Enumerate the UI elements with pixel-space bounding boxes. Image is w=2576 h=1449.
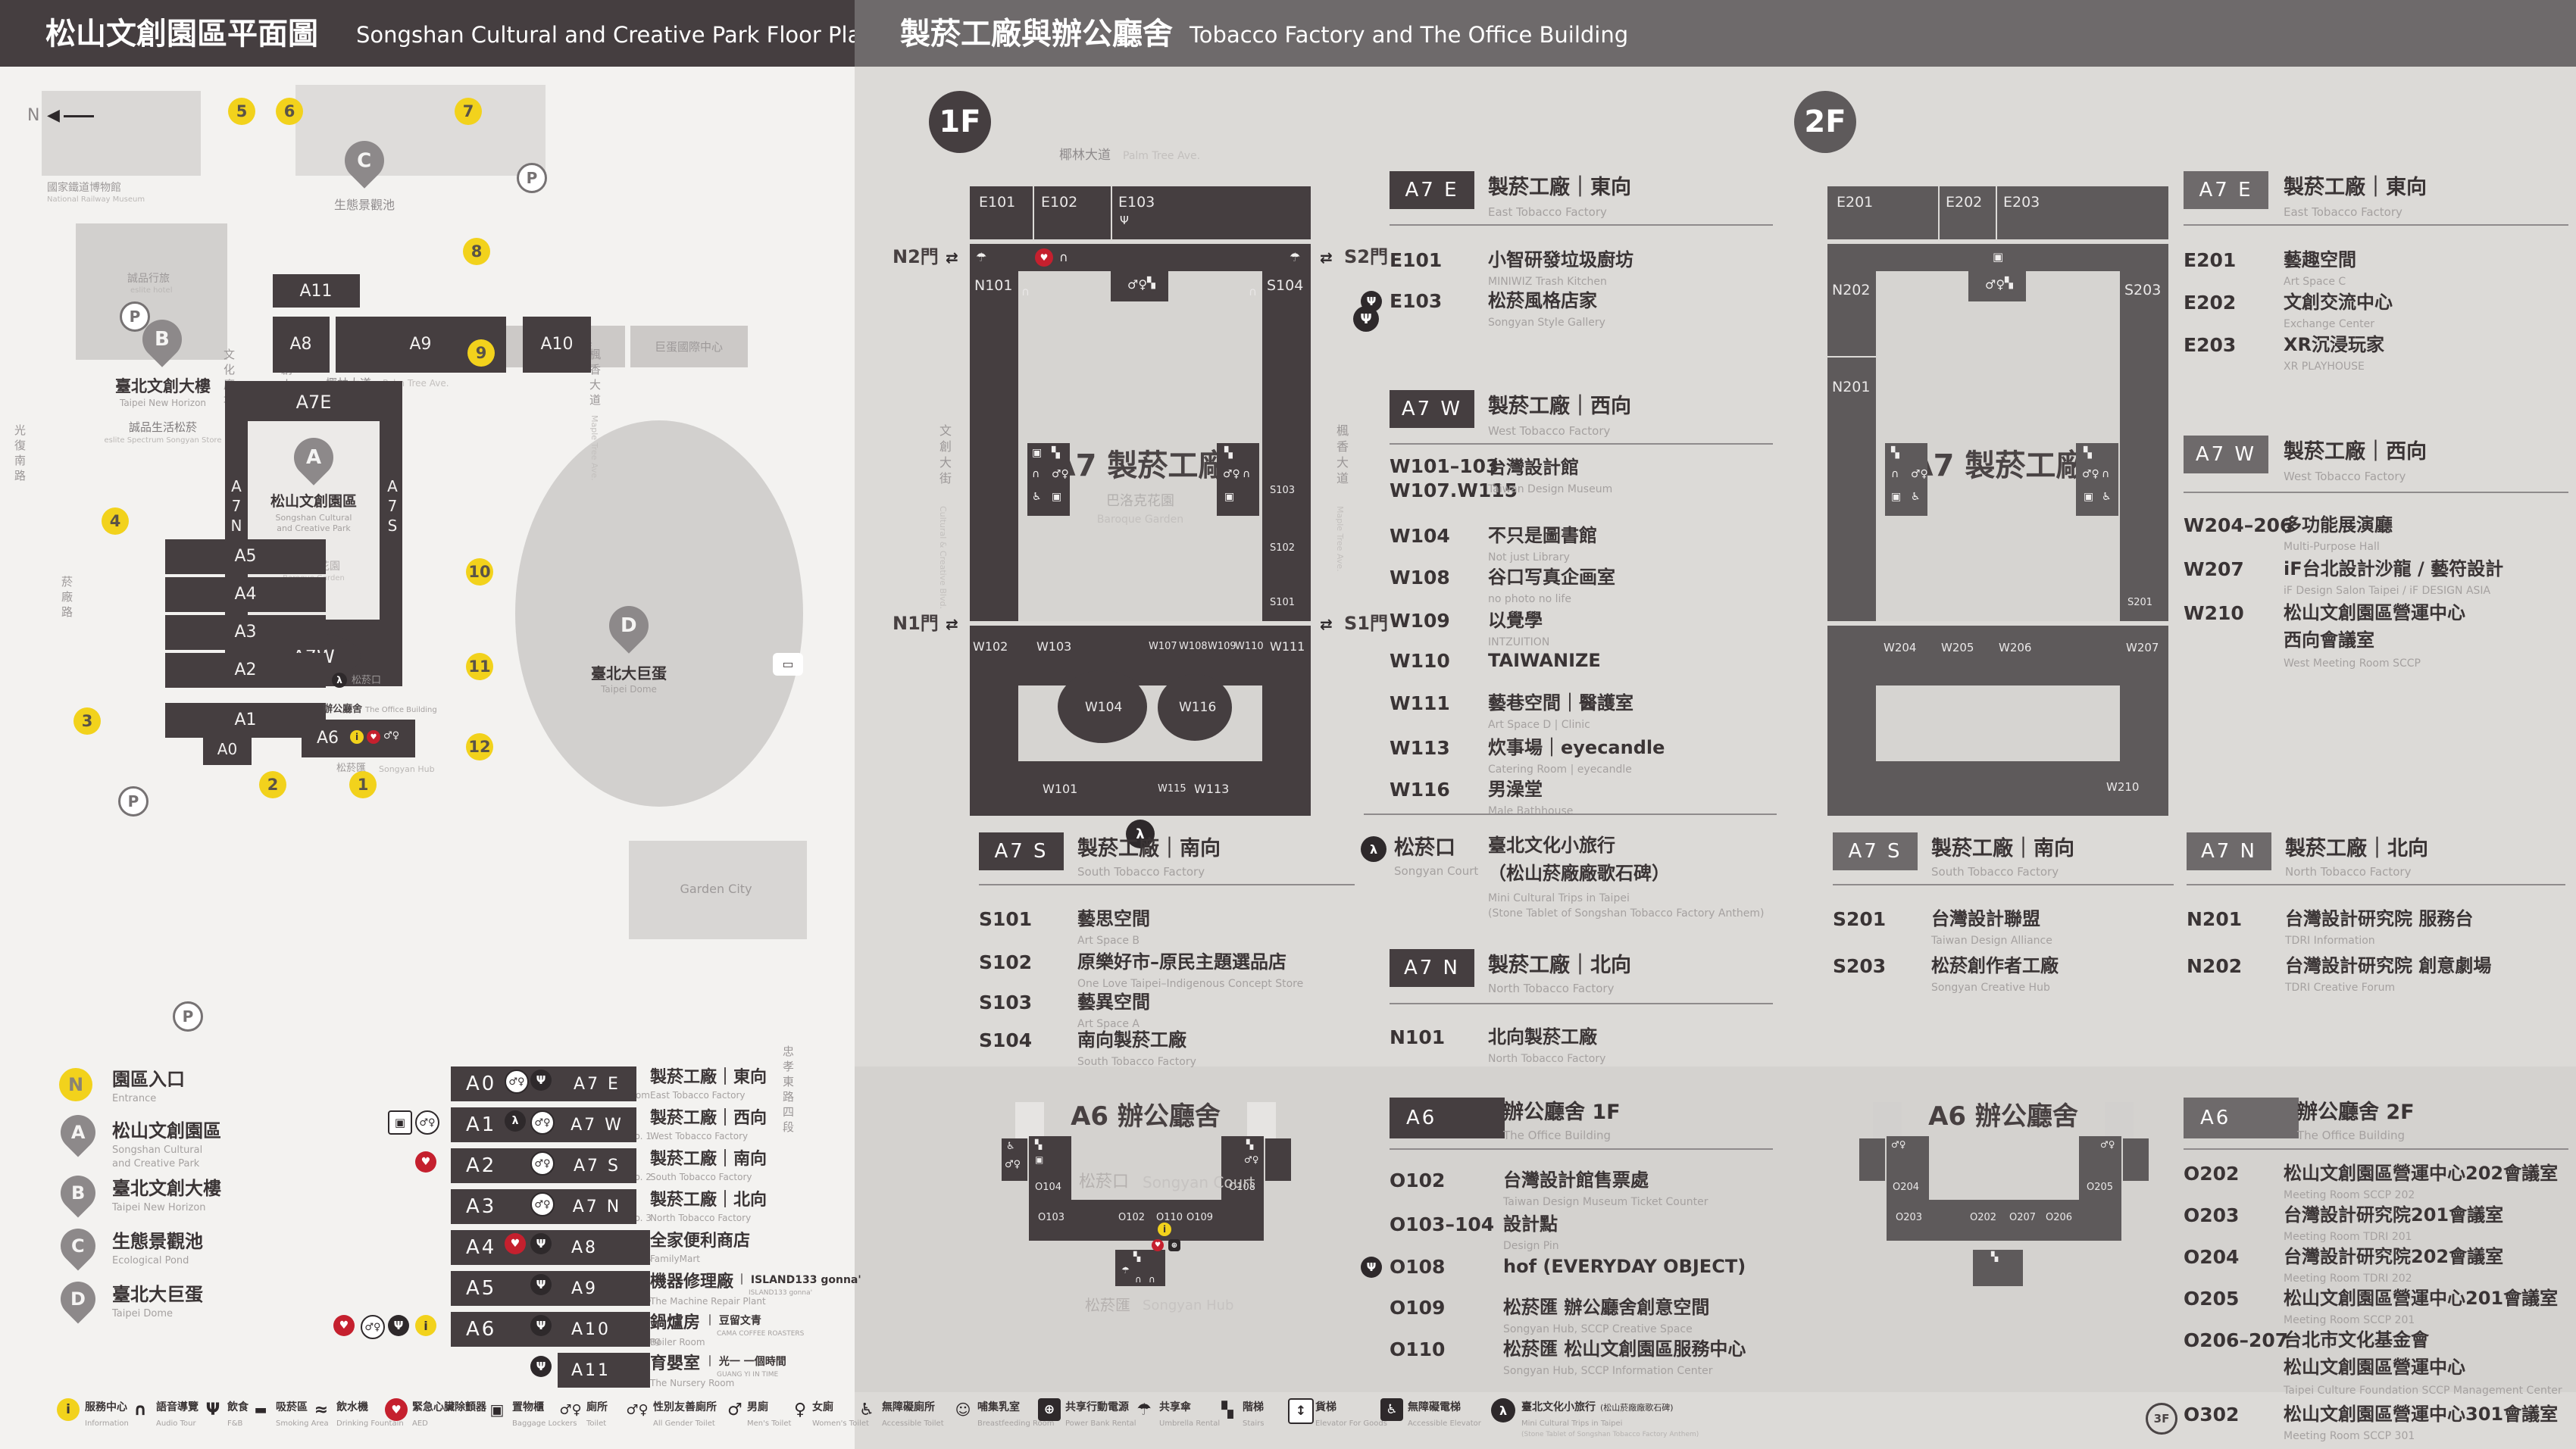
- toilet-icon: ♂♀: [1223, 468, 1240, 480]
- songyan-hub-label-en: Songyan Hub: [379, 765, 435, 775]
- songyan-court-label: 松菸口: [352, 676, 381, 687]
- facility-umbrella-zh: 共享傘: [1159, 1401, 1191, 1413]
- gate-s1-arrows: ⇄: [1320, 615, 1333, 633]
- audio-icon: ∩: [1135, 1274, 1142, 1285]
- dir-1f-a7n-zh: 製菸工廠｜北向: [1488, 954, 1631, 977]
- stairs-icon: ▚: [1224, 447, 1233, 459]
- fnb-icon: Ψ: [1361, 1257, 1382, 1278]
- womens-toilet-icon: ♀: [792, 1398, 808, 1421]
- row-e103-code: E103: [1390, 291, 1442, 313]
- row-o206-zh: 台北市文化基金會: [2284, 1330, 2429, 1351]
- row-s103-code: S103: [979, 992, 1032, 1014]
- row-o109-zh: 松菸匯 辦公廳舍創意空間: [1503, 1298, 1709, 1319]
- accessible-icon: ♿: [1911, 491, 1921, 503]
- locker-icon: ▣: [388, 1110, 412, 1135]
- gate-n2-arrows: ⇄: [946, 248, 958, 267]
- room-w102: W102: [973, 639, 1008, 654]
- dir-2f-a7s-en: South Tobacco Factory: [1931, 866, 2059, 879]
- row-o110-zh: 松菸匯 松山文創園區服務中心: [1503, 1339, 1746, 1360]
- facility-breastfeeding-zh: 哺集乳室: [977, 1401, 1020, 1413]
- gate-s2-arrows: ⇄: [1320, 248, 1333, 267]
- dir-2f-a7w-rule: [2184, 492, 2568, 493]
- row-w116-zh: 男澡堂: [1488, 779, 1543, 801]
- f2-ediv1: [1938, 186, 1940, 239]
- row-n101-code: N101: [1390, 1027, 1445, 1049]
- fnb-icon: Ψ: [203, 1398, 223, 1421]
- facility-audio-zh: 語音導覽: [156, 1401, 199, 1413]
- facility-trip-en2: (Stone Tablet of Songshan Tobacco Factor…: [1521, 1431, 1699, 1438]
- row-s103-en: Art Space A: [1077, 1018, 1140, 1030]
- power-bank-icon: ⊕: [1038, 1398, 1061, 1421]
- f1-garden-zh: 巴洛克花園: [1106, 494, 1174, 510]
- toilet-icon: ♂♀: [1891, 1139, 1906, 1150]
- room-e102: E102: [1041, 194, 1077, 211]
- dir-1f-a7n-en: North Tobacco Factory: [1488, 982, 1614, 995]
- locker-icon: ▣: [1993, 250, 2003, 264]
- garden-city-label: Garden City: [680, 882, 752, 896]
- eslite-spectrum-label-zh: 誠品生活松菸: [129, 421, 197, 434]
- fnb-icon: Ψ: [530, 1070, 552, 1091]
- stairs-icon: ▚: [1891, 447, 1899, 459]
- information-icon: i: [57, 1398, 80, 1421]
- room-n101: N101: [974, 277, 1012, 294]
- row-w109-zh: 以覺學: [1488, 611, 1543, 632]
- baggage-locker-icon: ▣: [486, 1398, 508, 1421]
- building-a7n-label: A7N: [227, 477, 245, 536]
- bus-stop-icon: ▭: [773, 653, 803, 676]
- entrance-11: 11: [466, 653, 493, 680]
- room-e202: E202: [1946, 194, 1982, 211]
- accessible-icon: ♿: [1006, 1141, 1015, 1152]
- row-n202-zh: 台灣設計研究院 創意劇場: [2285, 956, 2491, 977]
- legend-a10-brand: ｜ 豆留文青: [705, 1315, 761, 1327]
- room-w206: W206: [1999, 641, 2031, 654]
- locker-icon: ▣: [1032, 447, 1042, 459]
- row-s101-code: S101: [979, 909, 1032, 931]
- row-w108-code: W108: [1390, 567, 1450, 589]
- legend-a-en2: and Creative Park: [112, 1159, 199, 1170]
- row-w204-en: Multi-Purpose Hall: [2284, 541, 2380, 553]
- row-e101-zh: 小智研發垃圾廚坊: [1488, 250, 1633, 271]
- street-palm-1f-zh: 椰林大道: [1059, 148, 1111, 164]
- f2-lower-courtyard: [1876, 685, 2120, 761]
- building-a9-label: A9: [409, 335, 431, 354]
- row-w101-zh: 台灣設計館: [1488, 457, 1579, 479]
- entrance-8: 8: [463, 238, 490, 265]
- row-w113-en: Catering Room | eyecandle: [1488, 764, 1632, 776]
- locker-icon: ▣: [2084, 491, 2093, 503]
- dir-2f-a7e-zh: 製菸工廠｜東向: [2284, 176, 2427, 199]
- office-building-label-zh: 辦公廳舍: [323, 704, 362, 716]
- dir-a6-1f-badge: A6: [1390, 1098, 1505, 1138]
- goods-elevator-icon: ↕: [1288, 1398, 1314, 1424]
- row-s203-zh: 松菸創作者工廠: [1931, 956, 2059, 977]
- row-e201-code: E201: [2184, 250, 2236, 272]
- a6-2f-map-title: A6 辦公廳舍: [1928, 1102, 2078, 1132]
- info-icon: i: [415, 1315, 436, 1336]
- dir-2f-a7s-zh: 製菸工廠｜南向: [1931, 837, 2074, 860]
- accessible-elevator-icon: ♿: [1380, 1398, 1403, 1421]
- room-o102: O102: [1118, 1212, 1145, 1223]
- audio-icon: ∩: [1032, 468, 1039, 480]
- room-w107: W107: [1149, 641, 1177, 652]
- eslite-spectrum-label-en: eslite Spectrum Songyan Store: [105, 436, 222, 445]
- floor-plan-poster: 松山文創園區平面圖 Songshan Cultural and Creative…: [0, 0, 2576, 1449]
- row-s103-zh: 藝異空間: [1077, 992, 1150, 1013]
- dir-a6-1f-rule: [1390, 1148, 1773, 1150]
- row-e103-zh: 松菸風格店家: [1488, 291, 1597, 312]
- a6-1f-court-zh: 松菸口: [1079, 1173, 1129, 1191]
- room-w205: W205: [1941, 641, 1974, 654]
- aed-icon: ♥: [505, 1233, 526, 1254]
- row-w207-en: iF Design Salon Taipei / iF DESIGN ASIA: [2284, 585, 2490, 597]
- entrance-12: 12: [466, 733, 493, 760]
- legend-a7w-en: West Tobacco Factory: [650, 1132, 748, 1142]
- row-w113-zh: 炊事場｜eyecandle: [1488, 738, 1665, 759]
- legend-a7s-en: South Tobacco Factory: [650, 1173, 752, 1183]
- row-o109-en: Songyan Hub, SCCP Creative Space: [1503, 1323, 1693, 1335]
- court-zh: 松菸口: [1394, 836, 1455, 860]
- row-o206-code: O206–207: [2184, 1330, 2288, 1352]
- legend-a11-en: The Nursery Room: [650, 1379, 734, 1389]
- fnb-icon: Ψ: [388, 1315, 409, 1336]
- facility-power-en: Power Bank Rental: [1065, 1419, 1136, 1429]
- row-n201-zh: 台灣設計研究院 服務台: [2285, 909, 2473, 930]
- legend-a6-badge: A6: [451, 1312, 572, 1347]
- audio-tour-icon: ∩: [129, 1398, 152, 1421]
- row-o206-en: Taipei Culture Foundation SCCP Managemen…: [2284, 1385, 2562, 1397]
- stairs-icon: ▚: [1147, 277, 1155, 289]
- dir-1f-a7s-rule: [979, 884, 1355, 885]
- row-w101-en: Taiwan Design Museum: [1488, 483, 1612, 495]
- row-w116-en: Male Bathhouse: [1488, 805, 1573, 817]
- row-o110-en: Songyan Hub, SCCP Information Center: [1503, 1365, 1713, 1377]
- cultural-trip-icon: λ: [1491, 1398, 1515, 1422]
- gate-n1-arrows: ⇄: [946, 615, 958, 633]
- aed-icon: ♥: [1152, 1239, 1164, 1251]
- building-a7s-label: A7S: [383, 477, 402, 536]
- facility-men-en: Men's Toilet: [747, 1419, 791, 1429]
- legend-a11-zh: 育嬰室: [650, 1354, 700, 1373]
- audio-icon: ∩: [1891, 468, 1899, 480]
- legend-entrance-en: Entrance: [112, 1094, 156, 1105]
- row-w110-code: W110: [1390, 651, 1450, 673]
- aed-icon: ♥: [385, 1398, 408, 1421]
- parking-icon: P: [517, 163, 547, 193]
- row-n101-zh: 北向製菸工廠: [1488, 1027, 1597, 1048]
- legend-a8-en: FamilyMart: [650, 1254, 700, 1265]
- row-s104-en: South Tobacco Factory: [1077, 1056, 1196, 1068]
- toilet-icon: ♂♀: [361, 1315, 385, 1339]
- row-e203-en: XR PLAYHOUSE: [2284, 361, 2365, 373]
- legend-a9-zh: 機器修理廠: [650, 1273, 733, 1291]
- row-o302-code: O302: [2184, 1404, 2239, 1426]
- toilet-icon: ♂♀: [1052, 468, 1069, 480]
- row-w104-en: Not just Library: [1488, 551, 1570, 564]
- toilet-icon: ♂♀: [1127, 277, 1147, 292]
- building-a8-label: A8: [289, 335, 311, 354]
- building-a2-label: A2: [234, 660, 256, 679]
- aed-icon: ♥: [415, 1151, 436, 1173]
- entrance-10: 10: [466, 558, 493, 586]
- legend-c-en: Ecological Pond: [112, 1256, 189, 1267]
- row-w101-code: W101–103: [1390, 456, 1499, 478]
- walk-icon: λ: [332, 673, 347, 688]
- toilet-icon: ♂♀: [1911, 468, 1928, 480]
- room-w204: W204: [1884, 641, 1916, 654]
- facility-accessible-zh: 無障礙廁所: [882, 1401, 935, 1413]
- audio-icon: ∩: [1243, 468, 1250, 480]
- facility-trip-zh: 臺北文化小旅行: [1521, 1401, 1596, 1413]
- legend-a7n-en: North Tobacco Factory: [650, 1213, 751, 1224]
- room-w110: W110: [1235, 641, 1264, 652]
- facility-trip-zh2: (松山菸廠廠歌石碑): [1600, 1404, 1674, 1413]
- facility-toilet-zh: 廁所: [586, 1401, 608, 1413]
- facility-men-zh: 男廁: [747, 1401, 768, 1413]
- room-s101: S101: [1270, 597, 1295, 608]
- compass-line: [64, 115, 94, 117]
- pond-block: [295, 85, 546, 176]
- header-left-title-en: Songshan Cultural and Creative Park Floo…: [356, 23, 875, 48]
- audio-icon: ∩: [1059, 250, 1068, 264]
- room-s103: S103: [1270, 485, 1295, 496]
- all-gender-toilet-icon: ♂♀: [626, 1398, 649, 1421]
- room-o202: O202: [1970, 1212, 1996, 1223]
- f1-ediv1: [1033, 186, 1034, 239]
- legend-a10-brand2: CAMA COFFEE ROASTERS: [717, 1330, 804, 1338]
- row-o110-code: O110: [1390, 1339, 1445, 1361]
- aed-icon: ♥: [1035, 248, 1053, 267]
- row-o102-zh: 台灣設計館售票處: [1503, 1170, 1649, 1191]
- row-w111-code: W111: [1390, 693, 1450, 715]
- f2-top-band: [1827, 186, 2168, 239]
- court-en: Songyan Court: [1394, 865, 1478, 878]
- mens-toilet-icon: ♂: [727, 1398, 742, 1421]
- legend-a8-badge: A8: [558, 1230, 650, 1265]
- f1-right-band: [1262, 244, 1311, 816]
- court-item-en2: (Stone Tablet of Songshan Tobacco Factor…: [1488, 907, 1764, 920]
- locker-icon: ▣: [1052, 491, 1061, 503]
- row-e101-code: E101: [1390, 250, 1442, 272]
- fnb-icon: Ψ: [530, 1315, 552, 1336]
- office-building-label-en: The Office Building: [365, 706, 437, 715]
- eslite-hotel-label-en: eslite hotel: [130, 286, 172, 295]
- dir-a6-1f-en: The Office Building: [1503, 1129, 1611, 1142]
- legend-a9-badge: A9: [558, 1271, 650, 1306]
- legend-a11-badge: A11: [558, 1353, 650, 1388]
- legend-c-zh: 生態景觀池: [112, 1232, 203, 1253]
- row-o108-code: O108: [1390, 1257, 1445, 1279]
- legend-a7w-badge: A7 W: [558, 1107, 636, 1142]
- power-bank-icon: ⊕: [1168, 1239, 1180, 1251]
- legend-a8-zh: 全家便利商店: [650, 1232, 750, 1251]
- legend-a10-badge: A10: [558, 1312, 650, 1347]
- row-w207-code: W207: [2184, 559, 2244, 581]
- facility-acc-lift-zh: 無障礙電梯: [1408, 1401, 1461, 1413]
- room-w109: W109: [1208, 641, 1236, 652]
- sccp-label-en1: Songshan Cultural: [276, 514, 352, 523]
- legend-a7e-en: East Tobacco Factory: [650, 1091, 746, 1101]
- a6-1f-pillar: [1247, 1102, 1276, 1138]
- f1-street-right-en: Maple Tree Ave.: [1335, 506, 1345, 572]
- dir-a6-2f-en: The Office Building: [2297, 1129, 2405, 1142]
- dir-2f-a7e-badge: A7 E: [2184, 171, 2268, 209]
- legend-a-en1: Songshan Cultural: [112, 1145, 202, 1157]
- room-w104: W104: [1085, 700, 1122, 715]
- eslite-hotel-label-zh: 誠品行旅: [127, 273, 170, 285]
- dir-2f-a7n-zh: 製菸工廠｜北向: [2285, 837, 2428, 860]
- sccp-label-zh: 松山文創園區: [270, 494, 357, 511]
- dir-1f-a7e-en: East Tobacco Factory: [1488, 206, 1607, 219]
- legend-a9-brand: ｜ ISLAND133 gonna': [736, 1274, 861, 1286]
- room-e101: E101: [979, 194, 1015, 211]
- fnb-icon: Ψ: [530, 1356, 552, 1377]
- row-o205-code: O205: [2184, 1288, 2239, 1310]
- street-yanchang-zh: 菸廠路: [59, 576, 75, 621]
- row-s102-code: S102: [979, 952, 1032, 974]
- room-w108: W108: [1179, 641, 1208, 652]
- room-o207: O207: [2009, 1212, 2036, 1223]
- entrance-1: 1: [349, 771, 377, 798]
- a6-1f-hub-zh: 松菸匯: [1085, 1297, 1130, 1314]
- room-e103: E103: [1118, 194, 1155, 211]
- legend-a7w-zh: 製菸工廠｜西向: [650, 1109, 767, 1128]
- building-a7e-label: A7E: [296, 392, 332, 414]
- entrance-7: 7: [455, 98, 482, 125]
- legend-b-zh: 臺北文創大樓: [112, 1179, 221, 1200]
- dir-2f-a7w-en: West Tobacco Factory: [2284, 470, 2406, 483]
- entrance-3: 3: [73, 707, 101, 735]
- row-o103-code: O103–104: [1390, 1214, 1494, 1236]
- row-w207-zh: iF台北設計沙龍 / 藝符設計: [2284, 559, 2503, 580]
- aed-icon: ♥: [333, 1315, 355, 1336]
- dir-a6-2f-zh: 辦公廳舍 2F: [2297, 1101, 2415, 1124]
- room-o109: O109: [1186, 1212, 1213, 1223]
- f2-ediv2: [1996, 186, 1997, 239]
- toilet-icon: ♂♀: [530, 1192, 555, 1216]
- f2-right-band: [2120, 244, 2168, 816]
- toilet-icon: ♂♀: [530, 1151, 555, 1176]
- fnb-icon: Ψ: [1361, 291, 1382, 312]
- row-o203-code: O203: [2184, 1205, 2239, 1227]
- toilet-icon: ♂♀: [1005, 1159, 1021, 1170]
- toilet-icon: ♂♀: [505, 1070, 529, 1094]
- railway-museum-label-zh: 國家鐵道博物館: [47, 182, 121, 194]
- fnb-icon: Ψ: [530, 1233, 552, 1254]
- row-o202-code: O202: [2184, 1163, 2239, 1185]
- stairs-icon: ▚: [1052, 447, 1060, 459]
- row-w210-zh: 松山文創園區營運中心: [2284, 603, 2465, 624]
- taipei-dome-oval: [515, 420, 803, 807]
- songyan-court-icon: λ: [1361, 836, 1386, 862]
- street-maple-en: Maple Tree Ave.: [589, 415, 599, 481]
- entrance-6: 6: [276, 98, 303, 125]
- row-s104-zh: 南向製菸工廠: [1077, 1030, 1186, 1051]
- facility-smoking-zh: 吸菸區: [276, 1401, 308, 1413]
- audio-icon: ∩: [1149, 1274, 1155, 1285]
- accessible-icon: ♿: [1032, 491, 1042, 503]
- legend-a7e-badge: A7 E: [558, 1066, 636, 1101]
- toilet-icon: ♂♀: [383, 730, 399, 742]
- gate-s2: S2門: [1344, 247, 1388, 268]
- gate-s1: S1門: [1344, 614, 1388, 635]
- parking-icon: P: [173, 1001, 203, 1032]
- info-icon: i: [1158, 1223, 1171, 1236]
- umbrella-icon: ☂: [976, 250, 986, 264]
- facility-all-gender-en: All Gender Toilet: [653, 1419, 715, 1429]
- row-w109-code: W109: [1390, 611, 1450, 632]
- row-n201-code: N201: [2187, 909, 2242, 931]
- locker-icon: ▣: [1891, 491, 1901, 503]
- row-s201-code: S201: [1833, 909, 1886, 931]
- audio-icon: ∩: [1249, 285, 1257, 298]
- building-a5-label: A5: [234, 547, 256, 566]
- audio-icon: ∩: [1021, 285, 1030, 298]
- info-icon: i: [350, 730, 364, 744]
- room-w207: W207: [2126, 641, 2159, 654]
- legend-a7n-badge: A7 N: [558, 1189, 636, 1224]
- facility-accessible-en: Accessible Toilet: [882, 1419, 944, 1429]
- legend-d-zh: 臺北大巨蛋: [112, 1285, 203, 1306]
- dir-1f-a7s-badge: A7 S: [979, 832, 1064, 870]
- row-n101-en: North Tobacco Factory: [1488, 1053, 1605, 1065]
- row-s102-en: One Love Taipei–Indigenous Concept Store: [1077, 978, 1303, 990]
- room-s104: S104: [1267, 277, 1303, 294]
- dir-1f-a7n-rule: [1390, 1003, 1773, 1004]
- stairs-icon: ▚: [2084, 447, 2092, 459]
- compass-label: N: [27, 106, 39, 125]
- building-a4-label: A4: [234, 585, 256, 604]
- legend-a7s-badge: A7 S: [558, 1148, 636, 1183]
- row-e202-en: Exchange Center: [2284, 318, 2374, 330]
- facility-info-zh: 服務中心: [85, 1401, 127, 1413]
- header-right-title-en: Tobacco Factory and The Office Building: [1190, 23, 1628, 48]
- row-o302-zh: 松山文創園區營運中心301會議室: [2284, 1404, 2558, 1426]
- f1-bottom-band: [970, 761, 1311, 816]
- facility-goods-lift-zh: 貨梯: [1315, 1401, 1336, 1413]
- dir-1f-a7w-rule: [1390, 443, 1773, 445]
- umbrella-icon: ☂: [1290, 250, 1300, 264]
- building-a3-label: A3: [234, 623, 256, 642]
- toilet-icon: ♂♀: [1985, 277, 2005, 292]
- legend-d-en: Taipei Dome: [112, 1309, 173, 1320]
- f2-ndiv: [1827, 356, 1876, 358]
- facility-power-zh: 共享行動電源: [1065, 1401, 1129, 1413]
- row-o205-en: Meeting Room SCCP 201: [2284, 1314, 2415, 1326]
- facility-trip-en: Mini Cultural Trips in Taipei: [1521, 1419, 1622, 1429]
- row-n202-en: TDRI Creative Forum: [2285, 982, 2395, 994]
- row-s203-en: Songyan Creative Hub: [1931, 982, 2050, 994]
- fnb-icon: Ψ: [1120, 214, 1129, 227]
- stairs-icon: ▚: [1133, 1251, 1140, 1262]
- dir-a6-1f-zh: 辦公廳舍 1F: [1503, 1101, 1621, 1124]
- compass-icon: ◀: [47, 106, 60, 125]
- row-e202-zh: 文創交流中心: [2284, 292, 2393, 314]
- row-s101-zh: 藝思空間: [1077, 909, 1150, 930]
- taipei-new-horizon-label-zh: 臺北文創大樓: [115, 377, 211, 395]
- f1-rooms-band: [970, 626, 1311, 685]
- row-w104-zh: 不只是圖書館: [1488, 526, 1597, 547]
- row-w204-zh: 多功能展演廳: [2284, 515, 2393, 536]
- room-w103: W103: [1036, 639, 1071, 654]
- building-a6-label: A6: [317, 729, 339, 748]
- fnb-icon: Ψ: [530, 1274, 552, 1295]
- building-a0-label: A0: [217, 741, 237, 758]
- dir-1f-a7e-zh: 製菸工廠｜東向: [1488, 176, 1631, 199]
- room-e203: E203: [2003, 194, 2040, 211]
- dir-2f-a7e-rule: [2184, 224, 2568, 226]
- row-o203-en: Meeting Room TDRI 201: [2284, 1231, 2412, 1243]
